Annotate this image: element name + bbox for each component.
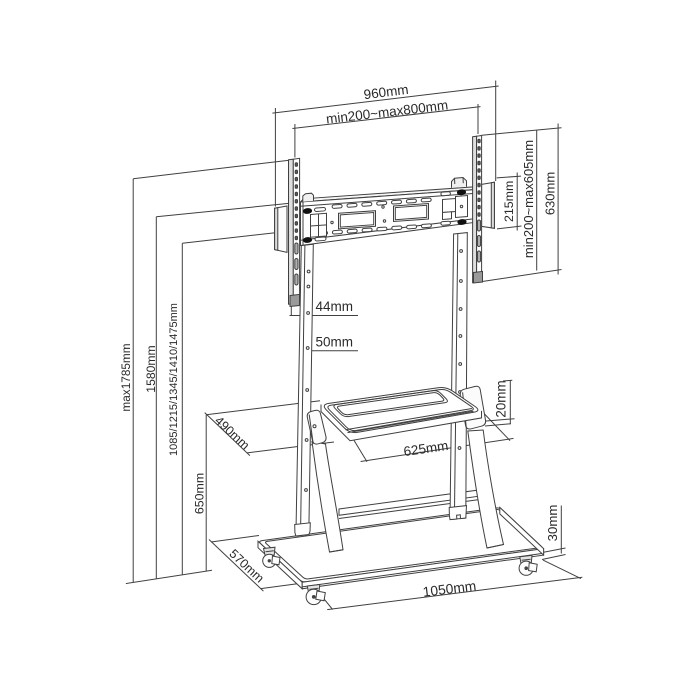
svg-text:215mm: 215mm [502, 181, 516, 222]
svg-text:30mm: 30mm [545, 505, 560, 542]
svg-text:650mm: 650mm [192, 473, 206, 514]
svg-text:20mm: 20mm [493, 380, 508, 417]
svg-text:max1785mm: max1785mm [119, 343, 133, 411]
svg-text:min200~max605mm: min200~max605mm [521, 140, 536, 258]
svg-text:1085/1215/1345/1410/1475mm: 1085/1215/1345/1410/1475mm [168, 303, 180, 456]
svg-text:44mm: 44mm [315, 299, 353, 314]
svg-text:1580mm: 1580mm [144, 345, 158, 392]
svg-text:630mm: 630mm [543, 172, 558, 215]
svg-text:50mm: 50mm [315, 334, 353, 349]
